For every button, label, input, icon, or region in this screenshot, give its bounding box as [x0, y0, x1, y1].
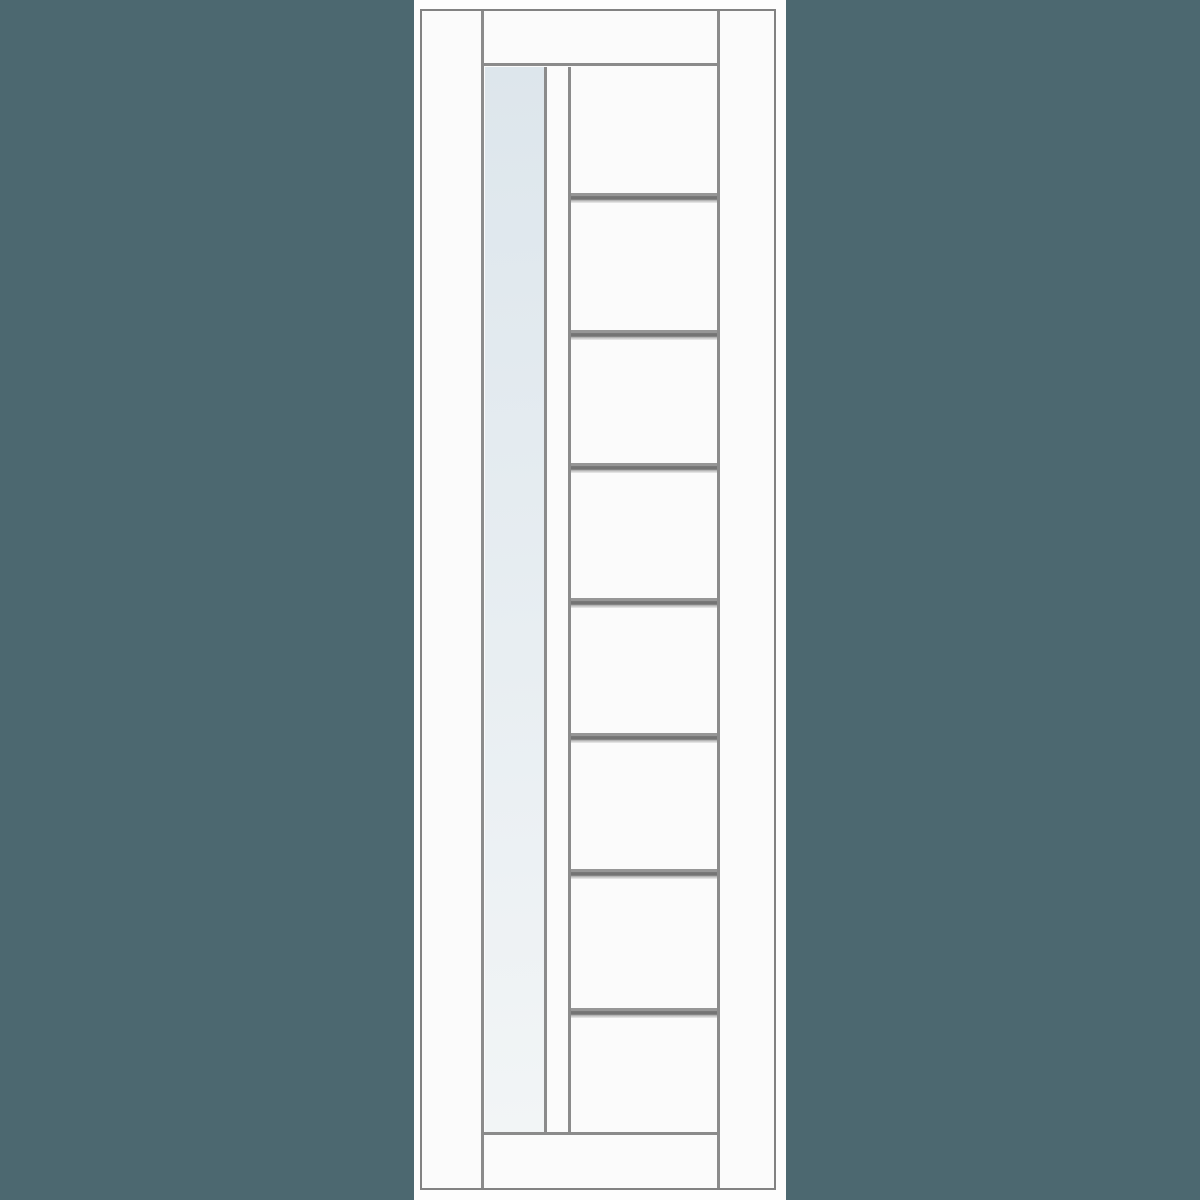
glass-right-frame-line [544, 67, 547, 1132]
product-image-strip [414, 0, 786, 1200]
panel-groove [571, 869, 717, 879]
panel-groove [571, 193, 717, 203]
panel-groove [571, 598, 717, 608]
door-top-rail-line [481, 63, 720, 66]
page-background: { "scene": { "type": "interior-door-prod… [0, 0, 1200, 1200]
door-grooved-panel [571, 67, 717, 1132]
panel-groove [571, 463, 717, 473]
panel-groove [571, 1008, 717, 1018]
door-glass-panel [485, 67, 544, 1132]
door-bottom-rail-line [481, 1132, 720, 1135]
panel-groove [571, 330, 717, 340]
door-left-stile-line [481, 11, 484, 1188]
door-right-stile-line [717, 11, 720, 1188]
panel-groove [571, 733, 717, 743]
door-illustration [420, 9, 776, 1190]
